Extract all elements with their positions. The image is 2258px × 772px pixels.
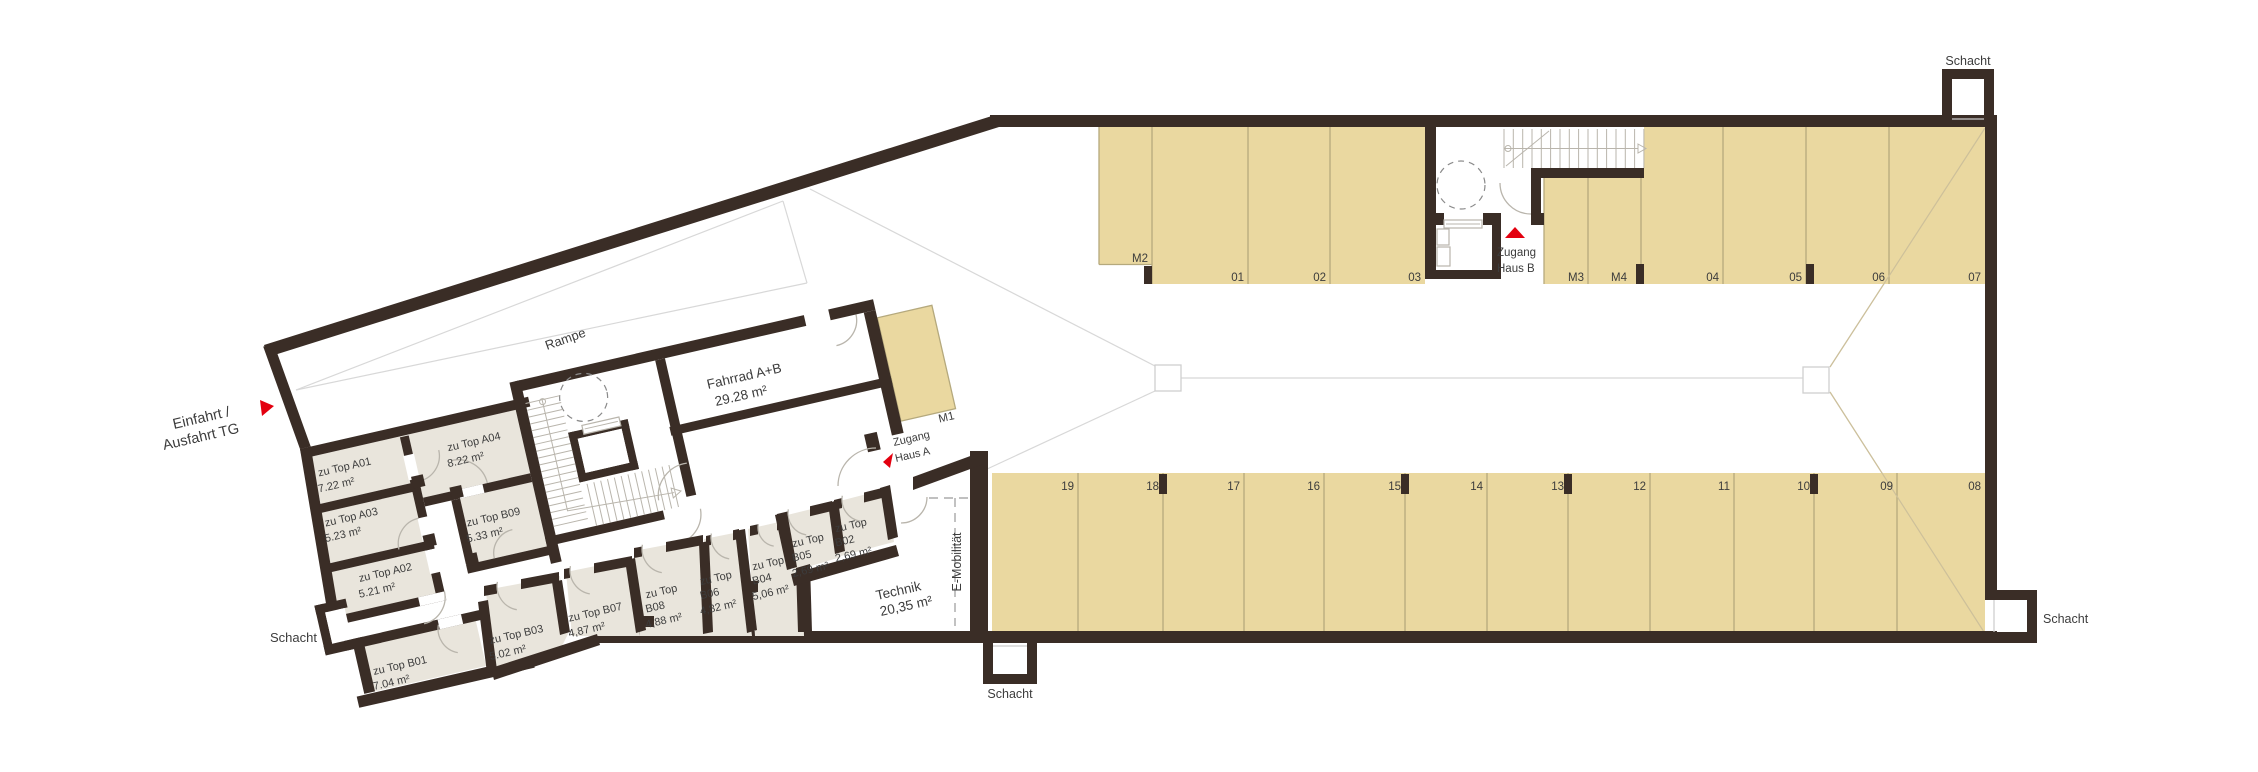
svg-text:08: 08 — [1968, 481, 1981, 493]
svg-text:09: 09 — [1880, 481, 1893, 493]
svg-text:Schacht: Schacht — [1945, 54, 1991, 68]
svg-text:Schacht: Schacht — [270, 630, 317, 645]
svg-text:12: 12 — [1633, 481, 1646, 493]
svg-text:19: 19 — [1061, 481, 1074, 493]
svg-text:M4: M4 — [1611, 272, 1628, 284]
svg-text:06: 06 — [1872, 272, 1885, 284]
svg-text:14: 14 — [1470, 481, 1483, 493]
svg-text:Schacht: Schacht — [2043, 612, 2089, 626]
svg-text:03: 03 — [1408, 272, 1421, 284]
svg-text:E-Mobilität: E-Mobilität — [950, 532, 964, 592]
svg-text:11: 11 — [1718, 481, 1730, 493]
svg-text:16: 16 — [1307, 481, 1320, 493]
svg-text:Haus B: Haus B — [1497, 263, 1535, 275]
svg-text:10: 10 — [1797, 481, 1810, 493]
svg-text:07: 07 — [1968, 272, 1981, 284]
svg-text:Schacht: Schacht — [987, 687, 1033, 701]
svg-text:M2: M2 — [1132, 253, 1148, 265]
svg-text:13: 13 — [1551, 481, 1564, 493]
svg-text:18: 18 — [1146, 481, 1159, 493]
svg-text:01: 01 — [1231, 272, 1244, 284]
svg-text:17: 17 — [1227, 481, 1240, 493]
svg-text:M3: M3 — [1568, 272, 1584, 284]
svg-text:15: 15 — [1388, 481, 1401, 493]
svg-text:05: 05 — [1789, 272, 1802, 284]
svg-text:02: 02 — [1313, 272, 1326, 284]
svg-text:04: 04 — [1706, 272, 1719, 284]
svg-text:Zugang: Zugang — [1497, 247, 1536, 259]
